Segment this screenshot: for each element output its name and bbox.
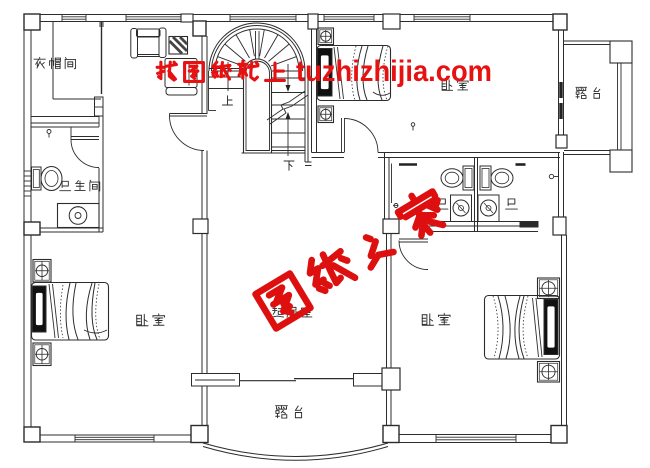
svg-text:tuzhizhijia.com: tuzhizhijia.com <box>296 55 492 88</box>
